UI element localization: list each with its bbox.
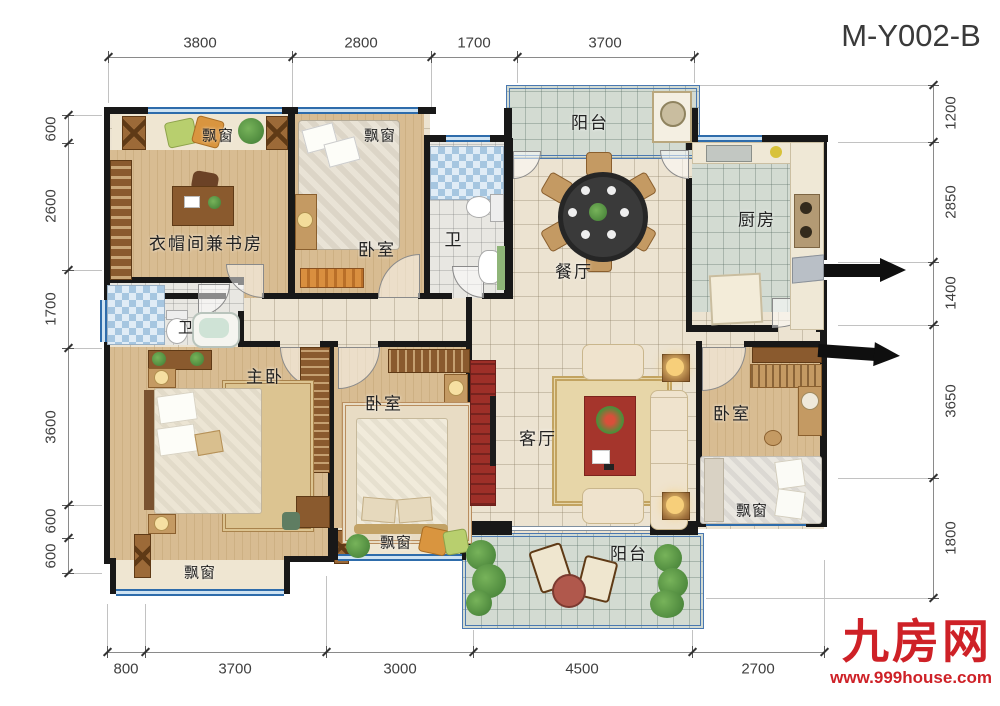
dim-line-top (108, 57, 694, 58)
shelf (752, 347, 822, 363)
pillow (361, 497, 397, 524)
entrance-arrow-head (880, 258, 906, 282)
dim-bottom-5: 2700 (741, 661, 774, 678)
wall-study-bottom-b (262, 293, 295, 299)
plate (607, 230, 616, 239)
tv (490, 396, 496, 466)
dim-left-2: 2600 (43, 189, 60, 222)
headboard (144, 390, 154, 510)
sliding-door-living-balcony (512, 526, 650, 531)
bay-plant (238, 118, 264, 144)
balcony-plant (466, 590, 492, 616)
plate (581, 230, 590, 239)
bay-window-label: 飘窗 (736, 500, 768, 521)
dim-bottom-4: 4500 (565, 661, 598, 678)
lamp (448, 380, 464, 396)
dim-right-4: 3650 (943, 384, 960, 417)
room-label-bath-top: 卫 (445, 226, 464, 251)
desk (172, 186, 234, 226)
window-bath-top (446, 135, 490, 142)
outside-patch (430, 110, 506, 137)
bay-window-label: 飘窗 (184, 562, 216, 583)
wall-master-bottom (284, 556, 332, 562)
dim-top-3: 1700 (457, 35, 490, 52)
bay-window-label: 飘窗 (202, 125, 234, 146)
dim-ext (74, 270, 102, 271)
balcony-palm (650, 590, 684, 618)
burner (800, 202, 812, 214)
dim-ext (74, 505, 102, 506)
pillow (156, 423, 198, 456)
entry-doormat (792, 254, 824, 283)
brand-logo: 九房网 www.999house.com (830, 616, 992, 688)
plate (620, 208, 629, 217)
dim-ext (692, 630, 693, 646)
brand-url: www.999house.com (830, 668, 992, 688)
pillow (774, 458, 806, 490)
plate (568, 208, 577, 217)
dim-left-4: 3600 (43, 410, 60, 443)
outside-patch (698, 529, 826, 560)
dim-ext (517, 63, 518, 83)
column (266, 116, 288, 150)
bay-plant (346, 534, 370, 558)
column (122, 116, 146, 150)
dim-left-3: 1700 (43, 292, 60, 325)
wardrobe (110, 160, 132, 280)
dim-left-1: 600 (43, 116, 60, 141)
wall-study-bedroom (288, 112, 295, 298)
dim-left-5: 600 (43, 508, 60, 533)
room-label-master: 主卧 (246, 363, 284, 388)
dim-top-2: 2800 (344, 35, 377, 52)
cushion (194, 430, 223, 456)
room-label-study: 衣帽间兼书房 (149, 230, 263, 255)
window-bedroom-top (298, 107, 418, 114)
shelf-plant (152, 352, 166, 366)
outside-patch (692, 110, 824, 137)
wall-bath-bottom-b (482, 293, 513, 299)
mirror (801, 392, 819, 410)
dim-ext (74, 348, 102, 349)
pillow (774, 488, 806, 520)
dim-left-6: 600 (43, 543, 60, 568)
room-label-balcony-bottom: 阳台 (610, 540, 648, 565)
wall-bath-dining (504, 138, 513, 298)
chair (282, 512, 300, 530)
room-label-bedroom-top: 卧室 (358, 236, 396, 261)
dim-ext (74, 573, 102, 574)
wall-kitchen-left-b (686, 178, 692, 330)
kettle (770, 146, 782, 158)
dim-ext (326, 576, 327, 646)
desk-plant (208, 196, 221, 209)
dim-line-bottom (107, 652, 824, 653)
bay-window-label: 飘窗 (380, 532, 412, 553)
pillow (397, 497, 433, 524)
dim-line-right (933, 85, 934, 598)
dim-ext (145, 604, 146, 646)
toilet (466, 196, 492, 218)
plate (607, 186, 616, 195)
room-label-balcony-top: 阳台 (571, 109, 609, 134)
lamp (297, 212, 313, 228)
wardrobe-rail (750, 364, 822, 388)
wall-bedroom-bottom-a (294, 293, 378, 299)
window-master-bath (100, 300, 107, 342)
bay-window-label: 飘窗 (364, 125, 396, 146)
armchair (582, 488, 644, 524)
dim-ext (108, 63, 109, 103)
desk-paper (184, 196, 200, 208)
dim-ext (838, 142, 928, 143)
bath-plant-shelf (497, 246, 505, 290)
dim-ext (700, 85, 928, 86)
dim-top-1: 3800 (183, 35, 216, 52)
refrigerator (709, 273, 764, 326)
toilet-tank (490, 194, 504, 222)
room-label-bedroom-right: 卧室 (713, 400, 751, 425)
stool (764, 430, 782, 446)
vanity-desk (296, 496, 330, 528)
window-study (148, 107, 282, 114)
wall-living-bottom-a (466, 521, 512, 535)
dim-right-1: 1200 (943, 96, 960, 129)
entrance-arrow-head (873, 342, 901, 368)
wall-bath-bottom-a (424, 293, 452, 299)
dim-ext (694, 63, 695, 83)
magazine (592, 450, 610, 464)
remote (604, 464, 614, 470)
shower-area (107, 285, 165, 345)
rug (300, 268, 364, 288)
floorplan-canvas: M-Y002-B 九房网 www.999house.com 3800 2800 … (0, 0, 1000, 706)
room-label-bedroom-mid: 卧室 (365, 390, 403, 415)
table-centerpiece (589, 203, 607, 221)
room-label-master-bath: 卫 (178, 317, 194, 338)
window-kitchen (698, 135, 762, 142)
dim-ext (107, 604, 108, 646)
dim-ext (706, 598, 928, 599)
column (134, 534, 151, 578)
room-label-dining: 餐厅 (555, 258, 593, 283)
room-label-living: 客厅 (519, 425, 557, 450)
plate (581, 186, 590, 195)
dim-right-2: 2850 (943, 185, 960, 218)
shower-area (430, 146, 504, 200)
wall-kitchen-bottom-a (686, 325, 778, 332)
pillow (156, 391, 198, 424)
flower-arrangement (596, 406, 624, 434)
dim-ext (838, 478, 928, 479)
burner (800, 226, 812, 238)
room-label-kitchen: 厨房 (738, 206, 776, 231)
dim-ext (292, 63, 293, 107)
dim-ext (74, 115, 102, 116)
dim-right-5: 1800 (943, 521, 960, 554)
wall-bedroom-mid-top-b (378, 341, 472, 347)
wall-master-bay-right (284, 558, 290, 594)
window-master-bay (116, 589, 284, 596)
balcony-table (552, 574, 586, 608)
brand-name: 九房网 (830, 616, 992, 668)
dim-bottom-3: 3000 (383, 661, 416, 678)
plan-code-title: M-Y002-B (828, 18, 994, 54)
dim-bottom-1: 800 (113, 661, 138, 678)
kitchen-sink (706, 145, 752, 162)
wall-master-top-a (242, 341, 280, 347)
wall-pillar-balcony-left (504, 108, 512, 140)
dim-right-3: 1400 (943, 276, 960, 309)
dim-ext (473, 630, 474, 646)
floor-lamp (666, 358, 684, 376)
dim-top-4: 3700 (588, 35, 621, 52)
dim-bottom-2: 3700 (218, 661, 251, 678)
washer-drum (660, 101, 686, 127)
floor-lamp (666, 496, 684, 514)
shelf-plant (190, 352, 204, 366)
armchair (582, 344, 644, 380)
bathtub-water (199, 318, 229, 338)
lamp (154, 516, 169, 531)
dim-ext (838, 325, 928, 326)
entrance-arrow-shaft (824, 264, 880, 277)
bolster (704, 458, 724, 522)
wardrobe (388, 349, 470, 373)
lamp (154, 370, 169, 385)
